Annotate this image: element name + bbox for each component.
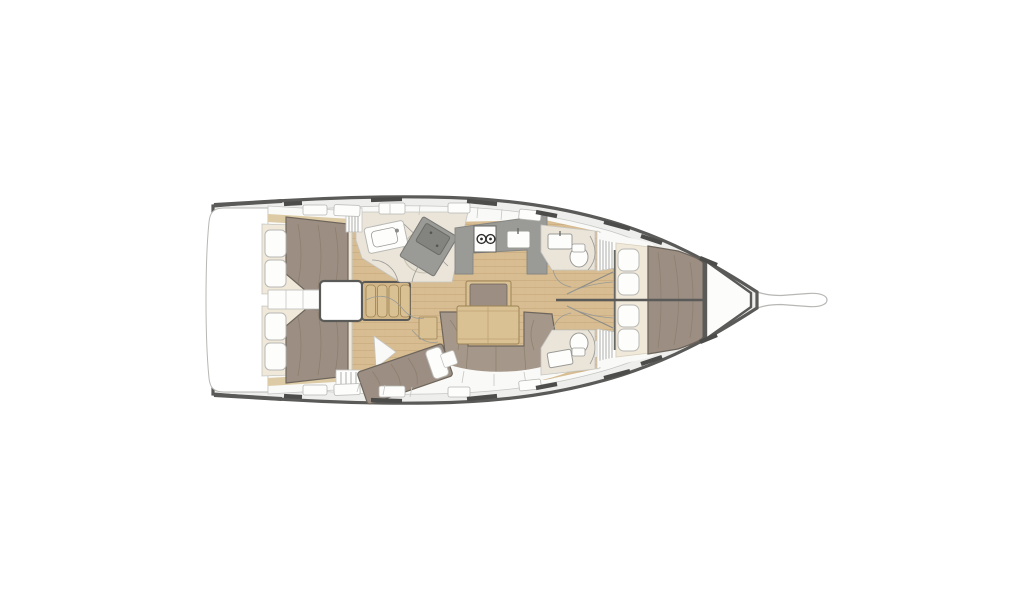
- burner-center: [489, 238, 492, 241]
- hatch: [334, 384, 360, 396]
- cleat: [284, 396, 302, 397]
- toilet-tank: [572, 348, 585, 356]
- hatch: [448, 203, 470, 213]
- burner-center: [480, 238, 483, 241]
- pillow: [618, 273, 639, 295]
- hatch: [334, 205, 360, 217]
- hatch: [303, 205, 327, 215]
- cleat: [371, 199, 402, 200]
- cleat: [284, 203, 302, 204]
- canvas: [0, 0, 1024, 600]
- bowsprit: [748, 289, 827, 311]
- step-tread: [389, 285, 399, 317]
- hatch: [303, 385, 327, 395]
- pillow: [618, 329, 639, 351]
- pillow: [618, 249, 639, 271]
- pillow: [265, 260, 286, 287]
- engine-compartment: [320, 281, 362, 321]
- pillow: [265, 230, 286, 257]
- boat-floor-plan: [0, 0, 1024, 600]
- step-tread: [366, 285, 376, 317]
- passage-lockers: [268, 290, 320, 309]
- hatch: [448, 387, 470, 397]
- step-tread: [378, 285, 388, 317]
- side-table: [419, 317, 437, 339]
- cleat: [467, 396, 497, 399]
- sink: [548, 234, 572, 249]
- cleat: [467, 201, 497, 204]
- cleat: [371, 400, 402, 401]
- pillow: [265, 343, 286, 370]
- hatch: [379, 203, 405, 214]
- pillow: [265, 313, 286, 340]
- pillow: [618, 305, 639, 327]
- swim-platform: [206, 208, 268, 392]
- hatch: [379, 386, 405, 397]
- toilet-tank: [572, 244, 585, 252]
